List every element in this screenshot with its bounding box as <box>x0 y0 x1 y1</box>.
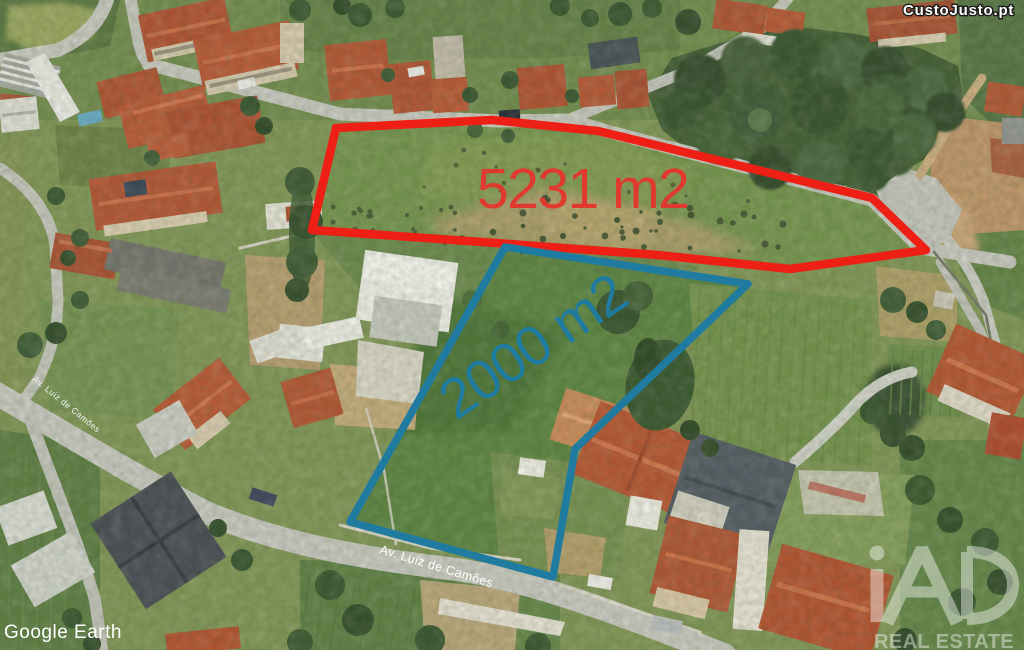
svg-text:5231 m2: 5231 m2 <box>477 157 688 221</box>
svg-text:REAL ESTATE: REAL ESTATE <box>874 631 1014 650</box>
svg-text:CustoJusto.pt: CustoJusto.pt <box>903 2 1014 19</box>
svg-text:Google Earth: Google Earth <box>4 622 122 643</box>
